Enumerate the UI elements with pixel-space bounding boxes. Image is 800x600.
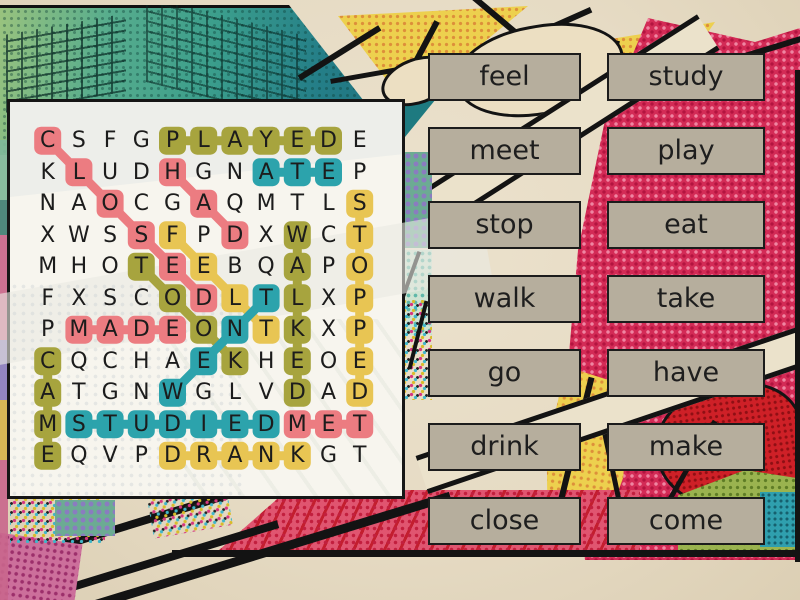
- grid-cell[interactable]: A: [219, 440, 250, 471]
- grid-cell[interactable]: Q: [63, 440, 94, 471]
- grid-cell[interactable]: C: [313, 220, 344, 251]
- grid-cell[interactable]: P: [344, 314, 375, 345]
- grid-cell[interactable]: G: [188, 377, 219, 408]
- word-button-go[interactable]: go: [428, 349, 581, 397]
- comic-right-border: [795, 70, 800, 562]
- grid-cell[interactable]: E: [157, 314, 188, 345]
- grid-cell[interactable]: C: [126, 283, 157, 314]
- city-windows-left: [6, 13, 126, 112]
- grid-cell[interactable]: N: [219, 314, 250, 345]
- word-button-study[interactable]: study: [607, 53, 765, 101]
- grid-cell[interactable]: T: [126, 251, 157, 282]
- grid-cell[interactable]: G: [95, 377, 126, 408]
- grid-cell[interactable]: E: [313, 409, 344, 440]
- grid-cell[interactable]: D: [126, 157, 157, 188]
- grid-cell[interactable]: P: [344, 157, 375, 188]
- grid-cell[interactable]: M: [282, 409, 313, 440]
- word-button-eat[interactable]: eat: [607, 201, 765, 249]
- grid-cell[interactable]: O: [344, 251, 375, 282]
- grid-cell[interactable]: C: [95, 346, 126, 377]
- grid-cell[interactable]: O: [313, 346, 344, 377]
- word-button-stop[interactable]: stop: [428, 201, 581, 249]
- grid-cell[interactable]: E: [344, 346, 375, 377]
- grid-cell[interactable]: K: [282, 314, 313, 345]
- grid-cell[interactable]: P: [313, 251, 344, 282]
- grid-cell[interactable]: E: [219, 409, 250, 440]
- grid-cell[interactable]: A: [313, 377, 344, 408]
- grid-cell[interactable]: A: [63, 188, 94, 219]
- wordsearch-game-screen: CSFGPLAYEDEKLUDHGNATEPNAOCGAQMTLSXWSSFPD…: [0, 0, 800, 600]
- grid-cell[interactable]: T: [95, 409, 126, 440]
- grid-cell[interactable]: G: [188, 157, 219, 188]
- grid-cell[interactable]: D: [282, 377, 313, 408]
- grid-cell[interactable]: T: [251, 314, 282, 345]
- grid-cell[interactable]: N: [126, 377, 157, 408]
- word-button-make[interactable]: make: [607, 423, 765, 471]
- grid-cell[interactable]: L: [219, 377, 250, 408]
- word-button-close[interactable]: close: [428, 497, 581, 545]
- grid-cell[interactable]: A: [32, 377, 63, 408]
- grid-cell[interactable]: P: [188, 220, 219, 251]
- grid-cell[interactable]: E: [157, 251, 188, 282]
- comic-bottom-border: [172, 550, 800, 557]
- grid-cell[interactable]: S: [95, 220, 126, 251]
- grid-cell[interactable]: D: [157, 409, 188, 440]
- grid-cell[interactable]: M: [32, 251, 63, 282]
- grid-cell[interactable]: I: [188, 409, 219, 440]
- grid-cell[interactable]: Q: [251, 251, 282, 282]
- grid-cell[interactable]: O: [95, 188, 126, 219]
- grid-cell[interactable]: D: [126, 314, 157, 345]
- grid-cell[interactable]: G: [313, 440, 344, 471]
- grid-cell[interactable]: P: [126, 440, 157, 471]
- grid-cell[interactable]: G: [157, 188, 188, 219]
- grid-cell[interactable]: Q: [63, 346, 94, 377]
- grid-cell[interactable]: Q: [219, 188, 250, 219]
- grid-cell[interactable]: B: [219, 251, 250, 282]
- grid-cell[interactable]: T: [63, 377, 94, 408]
- grid-cell[interactable]: V: [95, 440, 126, 471]
- grid-cell[interactable]: D: [344, 377, 375, 408]
- grid-cell[interactable]: H: [63, 251, 94, 282]
- grid-cell[interactable]: A: [157, 346, 188, 377]
- grid-cell[interactable]: E: [282, 125, 313, 156]
- grid-cell[interactable]: O: [95, 251, 126, 282]
- grid-cell[interactable]: N: [251, 440, 282, 471]
- letter-grid[interactable]: CSFGPLAYEDEKLUDHGNATEPNAOCGAQMTLSXWSSFPD…: [10, 102, 402, 496]
- grid-cell[interactable]: T: [344, 409, 375, 440]
- grid-cell[interactable]: Y: [251, 125, 282, 156]
- grid-cell[interactable]: O: [188, 314, 219, 345]
- word-button-play[interactable]: play: [607, 127, 765, 175]
- grid-cell[interactable]: K: [219, 346, 250, 377]
- grid-cell[interactable]: A: [251, 157, 282, 188]
- word-button-meet[interactable]: meet: [428, 127, 581, 175]
- grid-cell[interactable]: L: [188, 125, 219, 156]
- grid-cell[interactable]: L: [282, 283, 313, 314]
- word-button-come[interactable]: come: [607, 497, 765, 545]
- wordsearch-panel: CSFGPLAYEDEKLUDHGNATEPNAOCGAQMTLSXWSSFPD…: [7, 99, 405, 499]
- grid-cell[interactable]: F: [95, 125, 126, 156]
- grid-cell[interactable]: D: [219, 220, 250, 251]
- word-button-drink[interactable]: drink: [428, 423, 581, 471]
- comic-teal-patch: [760, 492, 796, 547]
- grid-cell[interactable]: G: [126, 125, 157, 156]
- grid-cell[interactable]: C: [32, 346, 63, 377]
- grid-cell[interactable]: W: [63, 220, 94, 251]
- grid-cell[interactable]: H: [251, 346, 282, 377]
- grid-cell[interactable]: R: [188, 440, 219, 471]
- grid-cell[interactable]: U: [95, 157, 126, 188]
- grid-cell[interactable]: L: [63, 157, 94, 188]
- grid-cell[interactable]: M: [251, 188, 282, 219]
- grid-cell[interactable]: T: [282, 188, 313, 219]
- grid-cell[interactable]: C: [32, 125, 63, 156]
- grid-cell[interactable]: M: [32, 409, 63, 440]
- grid-cell[interactable]: T: [282, 157, 313, 188]
- grid-cell[interactable]: K: [32, 157, 63, 188]
- grid-cell[interactable]: X: [313, 283, 344, 314]
- grid-cell[interactable]: T: [344, 220, 375, 251]
- grid-cell[interactable]: P: [344, 283, 375, 314]
- word-button-have[interactable]: have: [607, 349, 765, 397]
- grid-cell[interactable]: E: [282, 346, 313, 377]
- grid-cell[interactable]: D: [157, 440, 188, 471]
- grid-cell[interactable]: S: [344, 188, 375, 219]
- grid-cell[interactable]: P: [157, 125, 188, 156]
- grid-cell[interactable]: S: [126, 220, 157, 251]
- grid-cell[interactable]: A: [188, 188, 219, 219]
- grid-cell[interactable]: W: [157, 377, 188, 408]
- grid-cell[interactable]: D: [313, 125, 344, 156]
- grid-cell[interactable]: E: [344, 125, 375, 156]
- grid-cell[interactable]: S: [95, 283, 126, 314]
- grid-cell[interactable]: C: [126, 188, 157, 219]
- grid-cell[interactable]: H: [157, 157, 188, 188]
- grid-cell[interactable]: A: [219, 125, 250, 156]
- grid-cell[interactable]: M: [63, 314, 94, 345]
- grid-cell[interactable]: F: [157, 220, 188, 251]
- word-button-take[interactable]: take: [607, 275, 765, 323]
- grid-cell[interactable]: A: [282, 251, 313, 282]
- word-button-walk[interactable]: walk: [428, 275, 581, 323]
- grid-cell[interactable]: S: [63, 125, 94, 156]
- grid-cell[interactable]: H: [126, 346, 157, 377]
- grid-cell[interactable]: D: [251, 409, 282, 440]
- comic-dot-patch-green: [55, 500, 115, 536]
- grid-cell[interactable]: K: [282, 440, 313, 471]
- grid-cell[interactable]: A: [95, 314, 126, 345]
- grid-cell[interactable]: T: [251, 283, 282, 314]
- grid-cell[interactable]: N: [219, 157, 250, 188]
- grid-cell[interactable]: E: [188, 251, 219, 282]
- grid-cell[interactable]: O: [157, 283, 188, 314]
- grid-cell[interactable]: N: [32, 188, 63, 219]
- grid-cell[interactable]: L: [313, 188, 344, 219]
- grid-cell[interactable]: T: [344, 440, 375, 471]
- grid-cell[interactable]: L: [219, 283, 250, 314]
- grid-cell[interactable]: E: [32, 440, 63, 471]
- grid-cell[interactable]: X: [32, 220, 63, 251]
- word-button-feel[interactable]: feel: [428, 53, 581, 101]
- grid-cell[interactable]: X: [251, 220, 282, 251]
- grid-cell[interactable]: E: [313, 157, 344, 188]
- grid-cell[interactable]: D: [188, 283, 219, 314]
- grid-cell[interactable]: S: [63, 409, 94, 440]
- grid-cell[interactable]: X: [63, 283, 94, 314]
- grid-cell[interactable]: E: [188, 346, 219, 377]
- grid-cell[interactable]: F: [32, 283, 63, 314]
- grid-cell[interactable]: V: [251, 377, 282, 408]
- grid-cell[interactable]: W: [282, 220, 313, 251]
- grid-cell[interactable]: P: [32, 314, 63, 345]
- grid-cell[interactable]: U: [126, 409, 157, 440]
- grid-cell[interactable]: X: [313, 314, 344, 345]
